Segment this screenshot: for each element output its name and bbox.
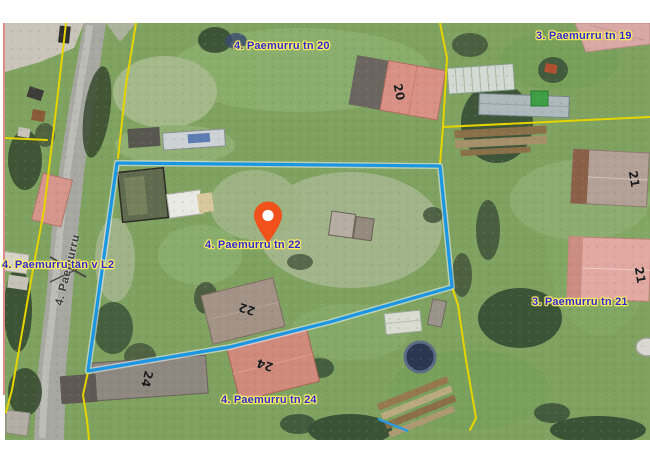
address-label-tn20: 4. Paemurru tn 20 [234, 40, 330, 52]
map-viewport[interactable]: 20 21 21 22 24 24 4. Paemurru 4. Paemurr… [0, 0, 650, 453]
texture-overlay [5, 23, 650, 440]
house-number: 21 [626, 170, 643, 189]
house-number: 21 [632, 266, 649, 285]
address-label-tn24: 4. Paemurru tn 24 [221, 394, 317, 406]
address-label-tn19: 3. Paemurru tn 19 [536, 30, 632, 42]
aerial-map[interactable] [5, 23, 650, 440]
address-label-tn21: 3. Paemurru tn 21 [532, 296, 628, 308]
address-label-tanav: 4. Paemurru tän v L2 [2, 259, 114, 271]
location-pin[interactable] [251, 200, 285, 244]
aerial-imagery [5, 23, 650, 440]
